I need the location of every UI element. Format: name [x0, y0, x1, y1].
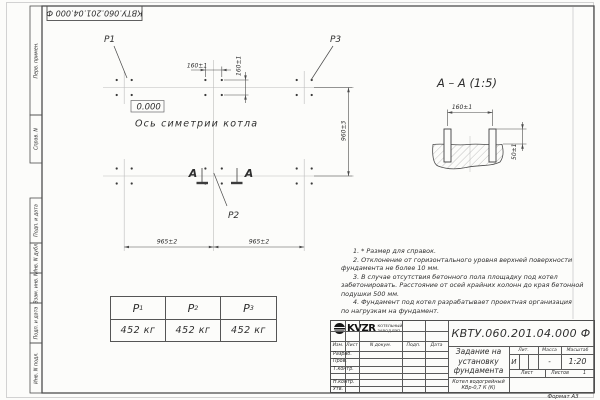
p2-label: P2 [228, 211, 239, 221]
title-line: установку [458, 357, 498, 367]
col-data: Дата [425, 341, 448, 351]
note-line: 4. Фундамент под котел разрабатывает про… [341, 298, 595, 307]
dim-text: 160±1 [187, 62, 207, 69]
drawing-subtitle: Котел водогрейный КВр-0,7 К (К) [448, 377, 509, 392]
note-line: забетонировать. Расстояние от осей крайн… [341, 281, 595, 290]
p1-label: P1 [104, 35, 115, 45]
dim-160-vertical: 160±1 [224, 56, 249, 103]
plan-centerlines [103, 60, 354, 251]
note-line: 1. * Размер для справок. [341, 247, 595, 256]
drawing-title: Задание на установку фундамента [448, 346, 509, 377]
note-line: 3. В случае отсутствия бетонного пола пл… [341, 273, 595, 282]
note-line: по нагрузкам на фундамент. [341, 307, 595, 316]
sheets-value: 1 [575, 369, 594, 377]
mass-header: Масса [538, 346, 561, 354]
left-margin-labels: Перв. примен. Справ. N Подп. и дата Инв.… [34, 42, 40, 383]
scale-header: Масштаб [561, 346, 594, 354]
logo-text: KVZR [347, 323, 375, 334]
company-logo: KVZR КОТЕЛЬНЫЙ ЗАВОД РЭП [331, 321, 416, 336]
title-line: Задание на [456, 347, 501, 357]
kvzr-logo-icon [334, 323, 345, 334]
col-podp: Подп. [402, 341, 425, 351]
p3-label: P3 [330, 35, 341, 45]
dim-text: 50±1 [511, 144, 518, 160]
row-prov: Пров. [333, 359, 359, 364]
note-line: 2. Отклонение от горизонтального уровня … [341, 256, 595, 265]
lit-header: Лит. [509, 346, 538, 354]
dim-160-horizontal: 160±1 [187, 62, 231, 77]
dim-960: 960±3 [314, 88, 353, 177]
scale-value: 1:20 [561, 354, 594, 369]
note-line: фундамента не более 10 мм. [341, 264, 595, 273]
dim-text: 960±3 [341, 121, 348, 141]
section-view: А – А (1:5) 160±1 [433, 76, 527, 172]
load-table-header: P2 [166, 297, 221, 320]
dim-160-section: 160±1 [448, 104, 493, 126]
anchor-bolt-dots [116, 79, 313, 185]
dim-965-chain: 965±2 965±2 [124, 239, 304, 249]
margin-label: Справ. N [34, 128, 40, 150]
sheet-label: Лист [509, 369, 545, 377]
boiler-axis-label: Ось симетрии котла [135, 119, 258, 130]
section-title: А – А (1:5) [436, 76, 497, 90]
top-stamp-text: КВТУ.060.201.04.000 Ф [46, 9, 143, 18]
dim-text: 965±2 [249, 239, 269, 246]
load-table-value: 452 кг [111, 320, 166, 341]
elevation-value: 0.000 [137, 103, 161, 113]
section-letter: А [244, 167, 254, 180]
notes-block: 1. * Размер для справок. 2. Отклонение о… [341, 247, 595, 315]
margin-label: Взам. инв. N [34, 272, 40, 304]
dim-text: 160±1 [236, 56, 243, 76]
title-block: Изм. Лист N докум. Подп. Дата Разраб. Пр… [330, 320, 595, 393]
col-izm: Изм. [331, 341, 345, 351]
anchor-bolt [489, 129, 496, 162]
dim-text: 160±1 [452, 104, 472, 111]
margin-label: Инв. N подл. [34, 352, 40, 384]
col-doc: N докум. [359, 341, 402, 351]
plan-view: P1 P3 P2 0.000 Ось симетрии котла 160±1 [103, 35, 354, 251]
mass-value: - [538, 354, 561, 369]
load-table: P1 P2 P3 452 кг 452 кг 452 кг [110, 296, 277, 342]
col-list: Лист [345, 341, 359, 351]
margin-label: Перв. примен. [34, 42, 40, 78]
dim-text: 965±2 [157, 239, 177, 246]
sheets-label: Листов [545, 369, 575, 377]
section-letter: А [188, 167, 198, 180]
anchor-bolt [444, 129, 451, 162]
load-table-header: P3 [221, 297, 276, 320]
margin-label: Подп. и дата [34, 307, 40, 340]
margin-label: Инв. N дубл. [34, 242, 40, 273]
lit-value: И [509, 354, 519, 369]
load-table-value: 452 кг [166, 320, 221, 341]
row-razrab: Разраб. [333, 352, 359, 357]
row-tkontr: Т.контр. [333, 367, 359, 372]
load-table-header: P1 [111, 297, 166, 320]
title-line: фундамента [454, 366, 504, 376]
row-nkontr: Н.контр. [333, 380, 359, 385]
drawing-sheet: КВТУ.060.201.04.000 Ф Перв. примен. Спра… [0, 0, 600, 400]
note-line: подушки 500 мм. [341, 290, 595, 299]
row-utv: Утв. [333, 387, 359, 392]
subtitle-line: КВр-0,7 К (К) [461, 385, 495, 391]
document-number: КВТУ.060.201.04.000 Ф [448, 321, 594, 346]
load-table-value: 452 кг [221, 320, 276, 341]
margin-label: Подп. и дата [34, 204, 40, 237]
format-label: Формат А3 [523, 394, 600, 400]
section-cut-marks: А А [188, 167, 254, 183]
